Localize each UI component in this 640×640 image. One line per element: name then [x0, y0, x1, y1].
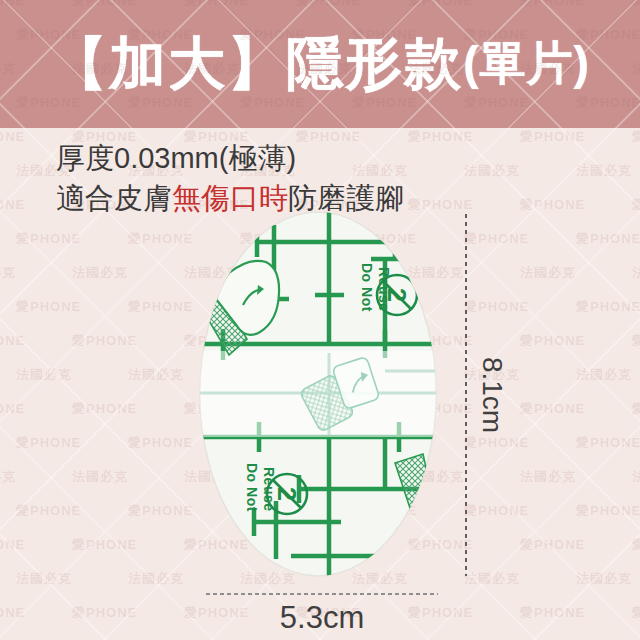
patch-oval: Do Not Reuse 2 Do Not Reuse 2: [199, 211, 437, 577]
watermark-text: 愛PHONE: [408, 128, 473, 146]
watermark-text: 愛PHONE: [0, 604, 25, 622]
watermark-text: 法國必克: [0, 264, 16, 282]
watermark-text: 愛PHONE: [520, 128, 585, 146]
watermark-text: 愛PHONE: [576, 230, 640, 248]
watermark-text: 愛PHONE: [520, 604, 585, 622]
watermark-text: 愛PHONE: [72, 400, 137, 418]
width-dimension-line: [206, 593, 438, 595]
watermark-text: 愛PHONE: [632, 604, 640, 622]
highlighted-text: 無傷口時: [172, 182, 288, 214]
watermark-text: 法國必克: [16, 366, 72, 384]
watermark-text: 愛PHONE: [128, 502, 193, 520]
page-title: 【加大】隱形款: [50, 26, 463, 103]
product-description: 厚度0.03mm(極薄) 適合皮膚無傷口時防磨護腳: [56, 138, 404, 218]
watermark-text: 愛PHONE: [520, 196, 585, 214]
watermark-text: 法國必克: [576, 366, 632, 384]
title-banner: 【加大】隱形款(單片): [0, 0, 640, 128]
width-dimension-label: 5.3cm: [222, 600, 422, 636]
watermark-text: 法國必克: [0, 468, 16, 486]
watermark-text: 愛PHONE: [632, 332, 640, 350]
watermark-text: 愛PHONE: [464, 502, 529, 520]
watermark-text: 愛PHONE: [520, 400, 585, 418]
watermark-text: 愛PHONE: [520, 332, 585, 350]
watermark-text: 愛PHONE: [128, 230, 193, 248]
watermark-text: 愛PHONE: [464, 298, 529, 316]
watermark-text: 法國必克: [464, 162, 520, 180]
height-dimension-line: [465, 214, 467, 576]
watermark-text: 愛PHONE: [576, 502, 640, 520]
watermark-text: 法國必克: [128, 366, 184, 384]
watermark-text: 法國必克: [464, 570, 520, 588]
watermark-text: 法國必克: [576, 570, 632, 588]
watermark-text: 愛PHONE: [632, 536, 640, 554]
watermark-text: 法國必克: [632, 468, 640, 486]
page-title-suffix: (單片): [463, 33, 590, 95]
watermark-text: 愛PHONE: [464, 230, 529, 248]
watermark-text: 愛PHONE: [0, 536, 25, 554]
watermark-text: 愛PHONE: [0, 196, 25, 214]
watermark-text: 法國必克: [520, 264, 576, 282]
watermark-text: 愛PHONE: [0, 400, 25, 418]
description-line-thickness: 厚度0.03mm(極薄): [56, 138, 404, 178]
patch-product-image: Do Not Reuse 2 Do Not Reuse 2: [199, 211, 437, 577]
watermark-text: 愛PHONE: [16, 298, 81, 316]
watermark-text: 愛PHONE: [632, 400, 640, 418]
watermark-text: 愛PHONE: [0, 128, 25, 146]
watermark-text: 愛PHONE: [128, 298, 193, 316]
watermark-text: 愛PHONE: [16, 434, 81, 452]
do-not-label: Do Not: [359, 263, 375, 312]
watermark-text: 法國必克: [576, 162, 632, 180]
watermark-text: 愛PHONE: [72, 604, 137, 622]
watermark-text: 愛PHONE: [576, 298, 640, 316]
do-not-label: Do Not: [244, 463, 260, 512]
watermark-text: 愛PHONE: [16, 502, 81, 520]
watermark-text: 法國必克: [72, 264, 128, 282]
watermark-text: 法國必克: [520, 468, 576, 486]
watermark-text: 法國必克: [632, 264, 640, 282]
watermark-text: 愛PHONE: [520, 536, 585, 554]
watermark-text: 愛PHONE: [72, 332, 137, 350]
watermark-text: 愛PHONE: [16, 230, 81, 248]
watermark-text: 愛PHONE: [128, 434, 193, 452]
watermark-text: 法國必克: [16, 570, 72, 588]
watermark-text: 愛PHONE: [632, 196, 640, 214]
watermark-text: 愛PHONE: [0, 332, 25, 350]
do-not-reuse-top: Do Not Reuse 2: [359, 263, 417, 315]
watermark-text: 法國必克: [72, 468, 128, 486]
watermark-text: 法國必克: [128, 570, 184, 588]
watermark-text: 愛PHONE: [632, 128, 640, 146]
height-dimension-label: 8.1cm: [477, 340, 507, 450]
watermark-text: 愛PHONE: [576, 434, 640, 452]
watermark-text: 愛PHONE: [72, 536, 137, 554]
